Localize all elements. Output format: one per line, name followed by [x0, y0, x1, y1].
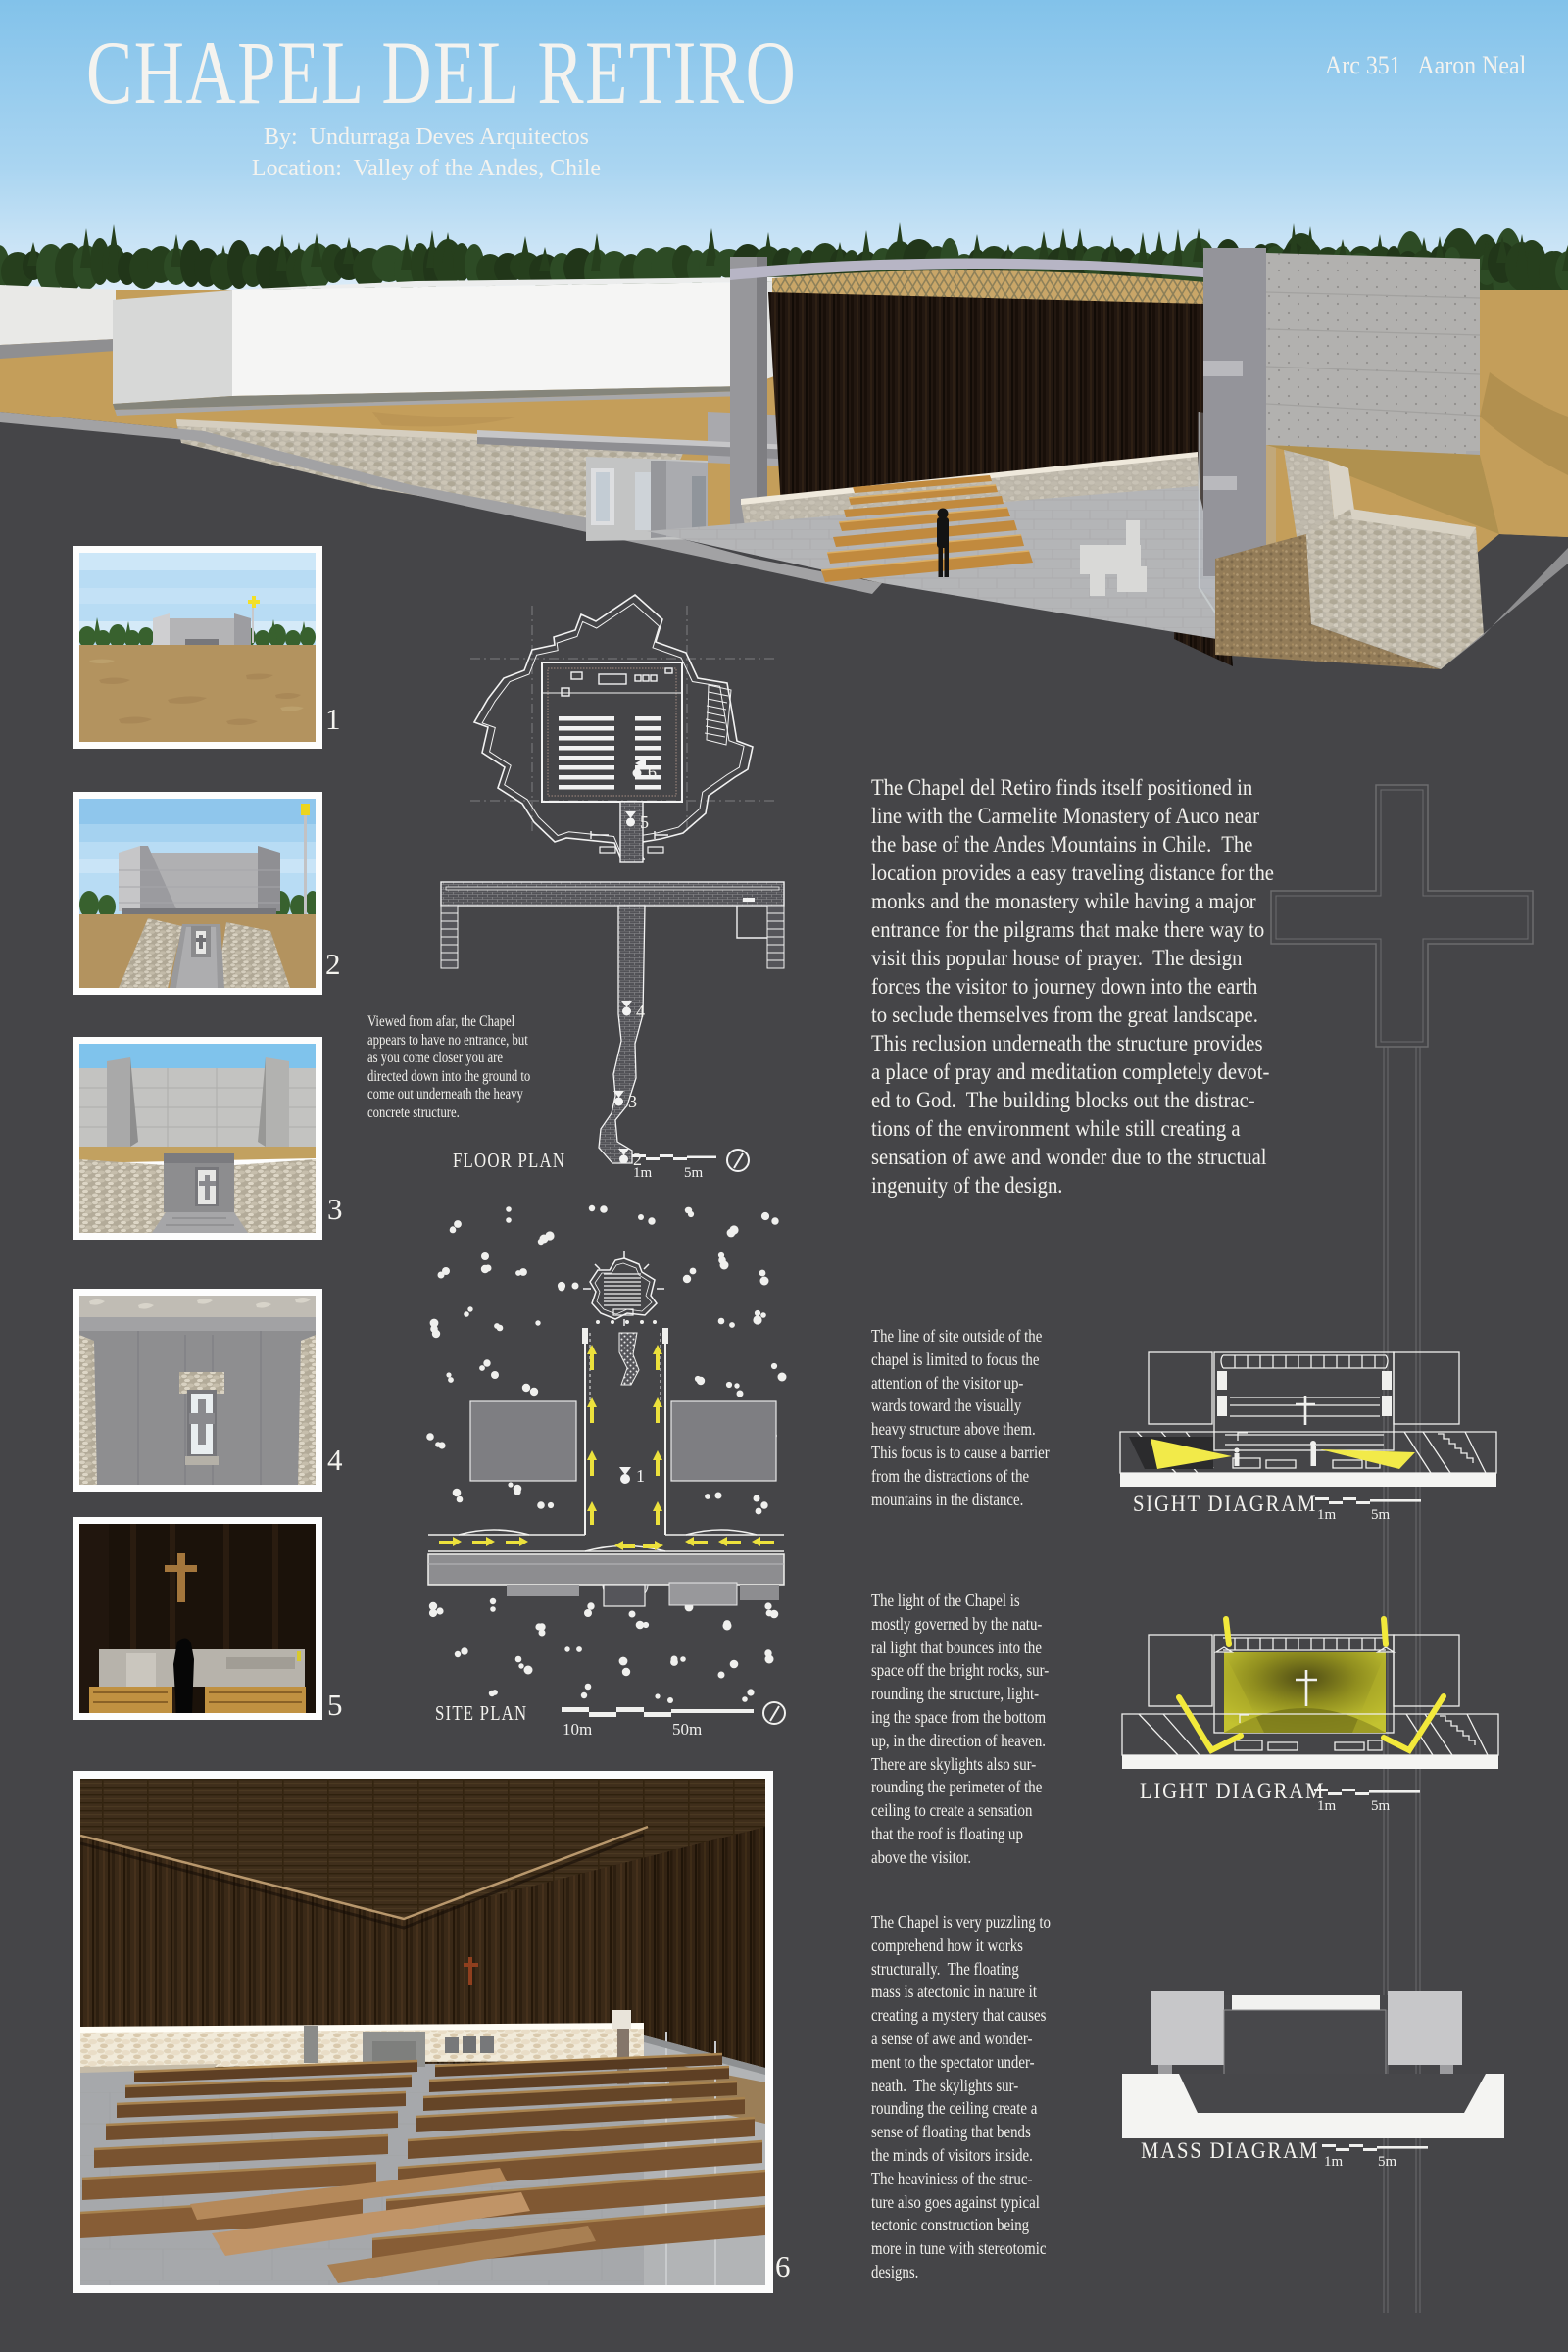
svg-text:4: 4 — [636, 1002, 645, 1021]
svg-text:5m: 5m — [684, 1165, 704, 1181]
svg-text:5m: 5m — [1371, 1507, 1391, 1523]
svg-text:5: 5 — [640, 812, 649, 832]
svg-text:1m: 1m — [1317, 1507, 1337, 1523]
svg-text:6: 6 — [648, 762, 657, 782]
svg-text:50m: 50m — [672, 1720, 702, 1739]
svg-text:1: 1 — [636, 1466, 645, 1486]
svg-text:3: 3 — [628, 1092, 637, 1111]
svg-text:1m: 1m — [1324, 2154, 1344, 2170]
svg-text:5m: 5m — [1378, 2154, 1397, 2170]
svg-text:10m: 10m — [563, 1720, 592, 1739]
svg-text:5m: 5m — [1371, 1798, 1391, 1813]
svg-text:1m: 1m — [633, 1165, 653, 1181]
